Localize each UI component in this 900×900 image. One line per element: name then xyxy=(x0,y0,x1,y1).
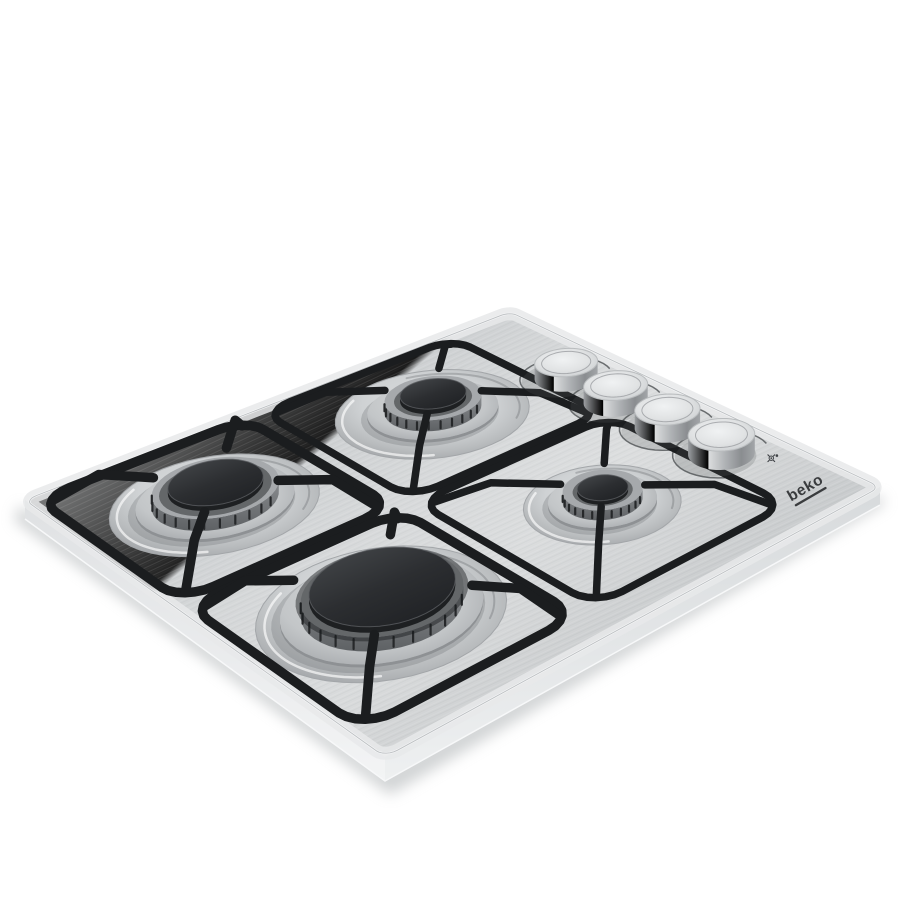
pan-support-finger xyxy=(604,423,608,463)
pan-support-finger xyxy=(596,507,601,597)
icon-center-dot xyxy=(770,457,772,459)
icon-position-dot xyxy=(776,454,779,457)
hob-scene: beko xyxy=(0,0,900,900)
product-photo-gas-hob: beko xyxy=(0,0,900,900)
